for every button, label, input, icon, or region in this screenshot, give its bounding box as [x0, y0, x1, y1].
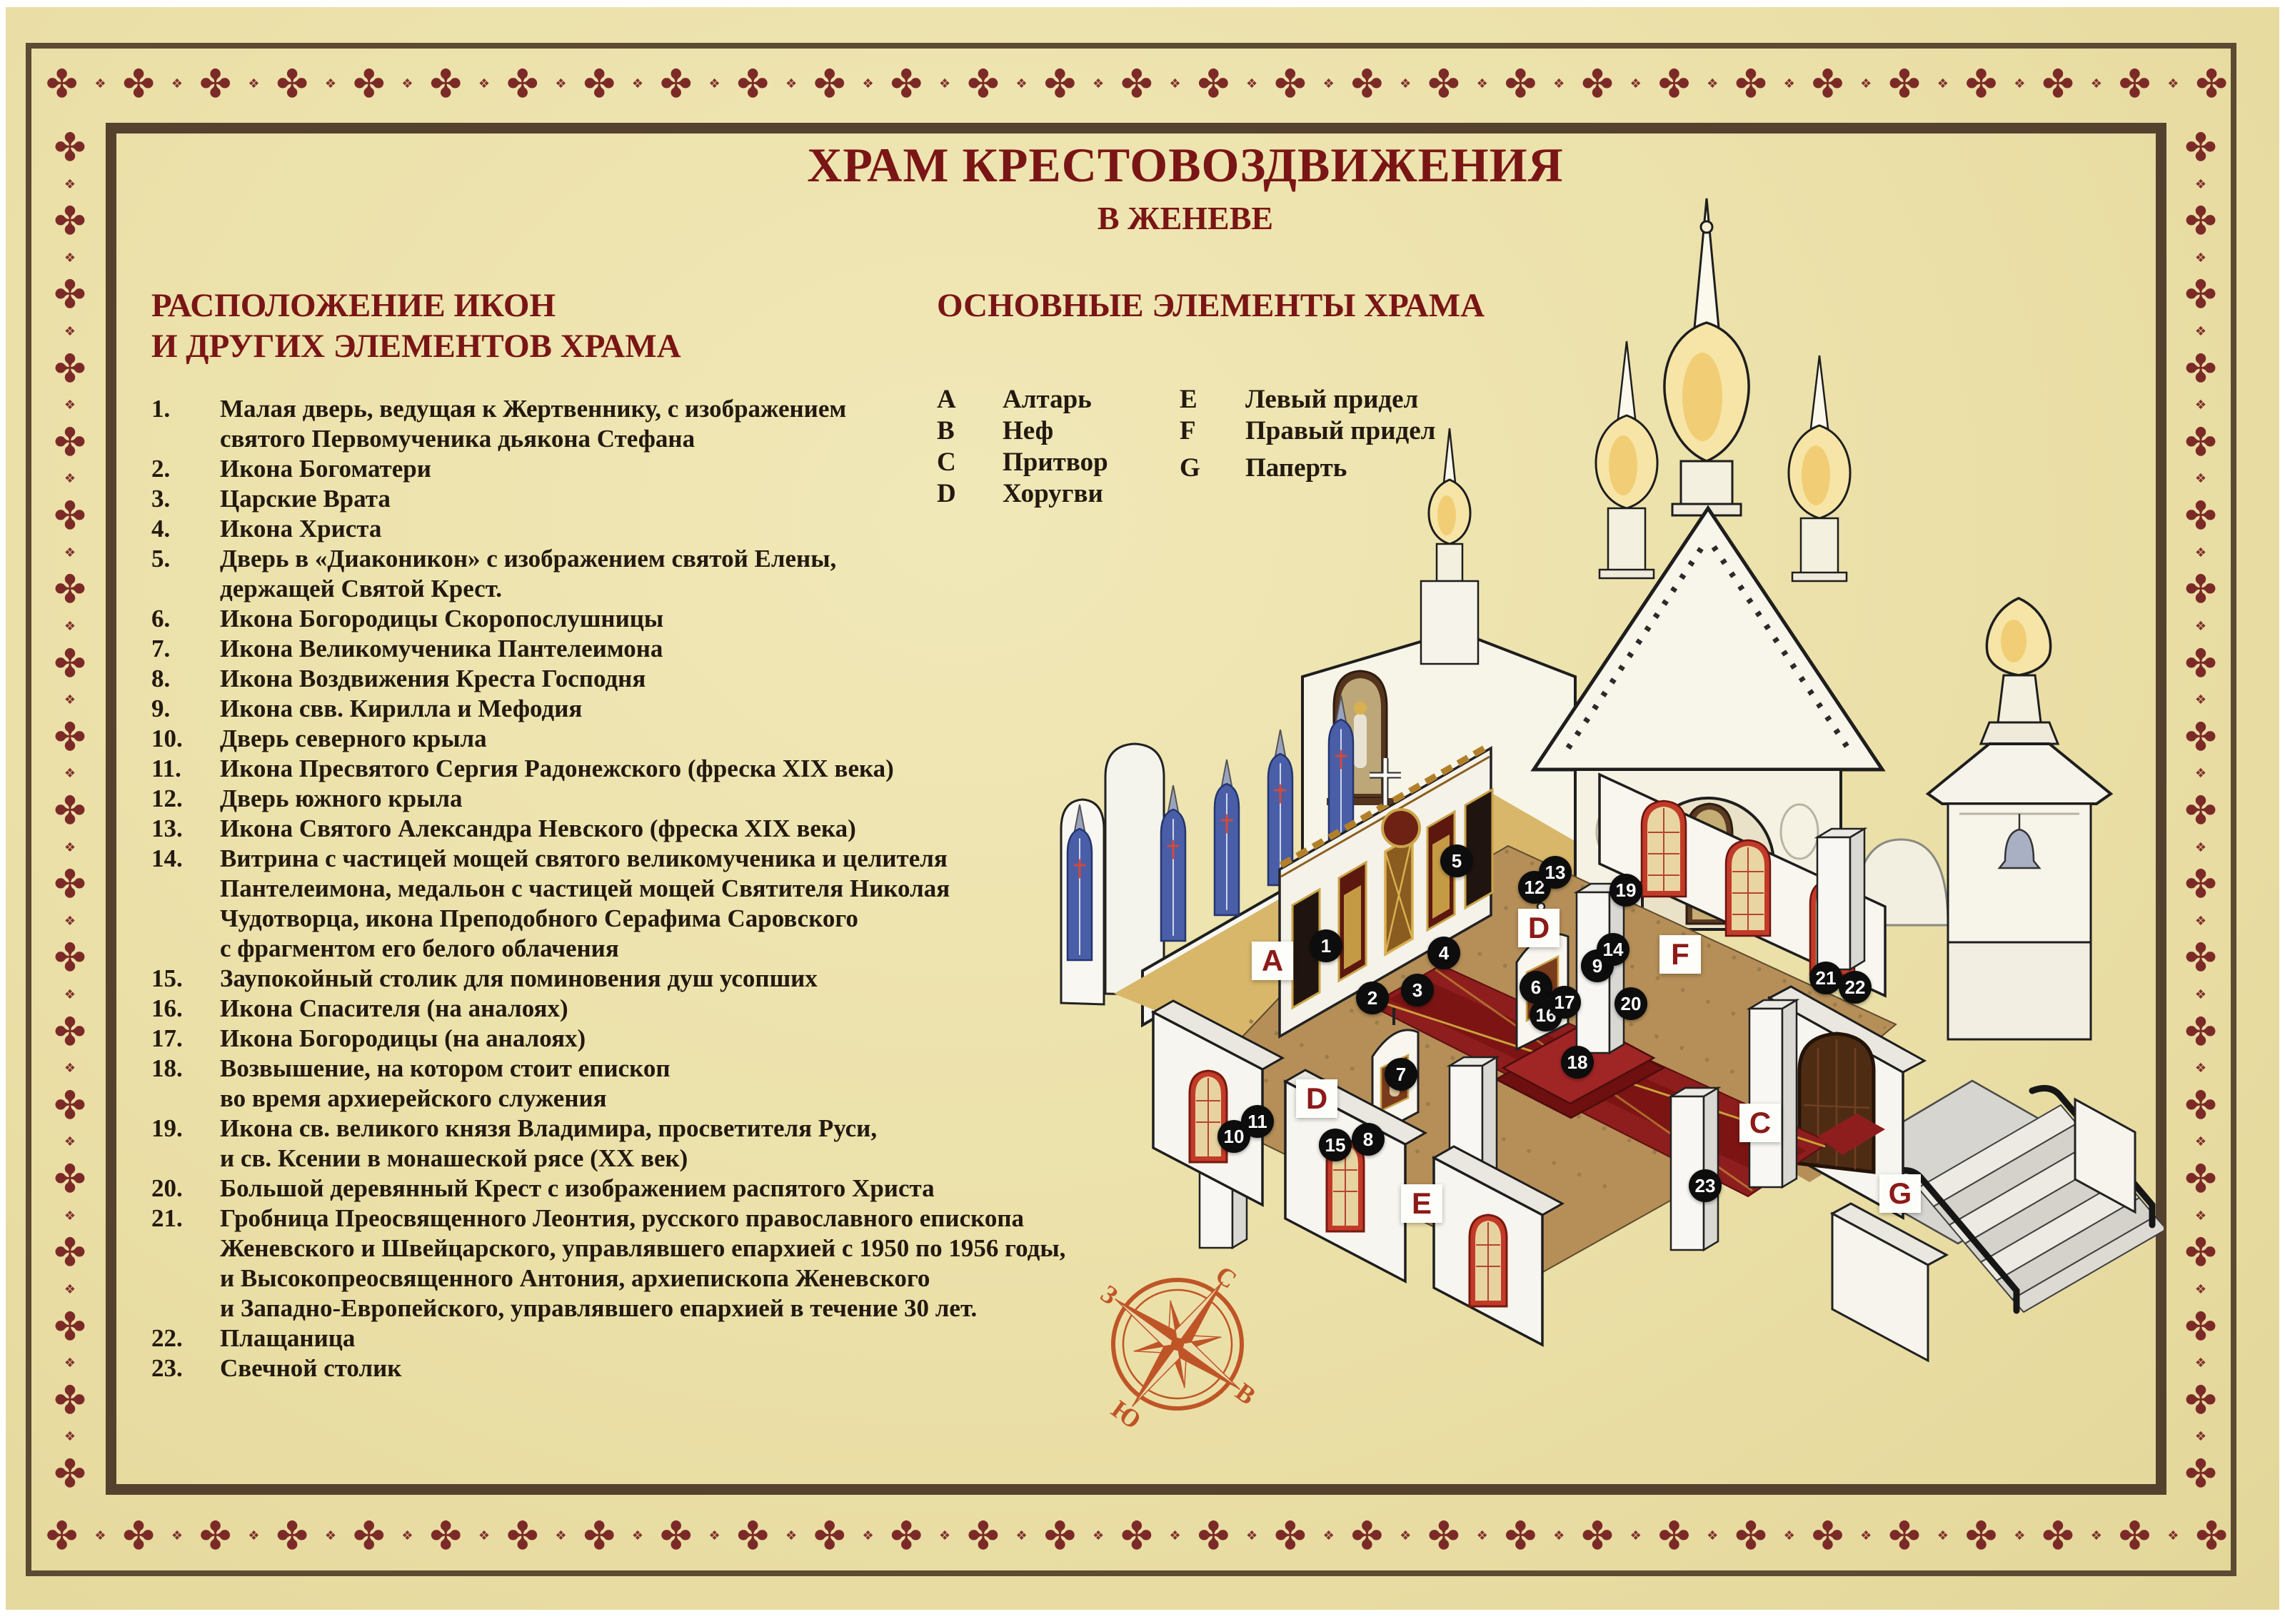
- border-dot-icon: ❖: [862, 1530, 873, 1543]
- border-rosette-icon: ✤: [1044, 65, 1076, 104]
- border-dot-icon: ❖: [1937, 1530, 1949, 1543]
- border-rosette-icon: ✤: [353, 1517, 385, 1555]
- border-rosette-icon: ✤: [54, 1086, 86, 1125]
- border-dot-icon: ❖: [1860, 1530, 1872, 1543]
- icon-list-item-text: Дверь в «Диаконикон» с изображением свят…: [220, 544, 836, 604]
- border-rosette-icon: ✤: [2184, 1086, 2216, 1125]
- icon-list-item-text: Витрина с частицей мощей святого великом…: [220, 844, 950, 964]
- border-dot-icon: ❖: [2091, 1530, 2102, 1543]
- border-rosette-icon: ✤: [276, 1517, 308, 1555]
- border-rosette-icon: ✤: [2184, 939, 2216, 977]
- icon-list-item-number: 21.: [151, 1204, 220, 1234]
- icon-list-item: 16.Икона Спасителя (на аналоях): [151, 994, 1087, 1024]
- border-rosette-icon: ✤: [2184, 497, 2216, 535]
- border-ornament-left: ✤❖✤❖✤❖✤❖✤❖✤❖✤❖✤❖✤❖✤❖✤❖✤❖✤❖✤❖✤❖✤❖✤❖✤❖✤: [39, 128, 101, 1493]
- border-rosette-icon: ✤: [2119, 1517, 2151, 1555]
- border-dot-icon: ❖: [325, 1530, 336, 1543]
- border-dot-icon: ❖: [1093, 1530, 1104, 1543]
- border-rosette-icon: ✤: [2184, 1381, 2216, 1420]
- icon-list-item-text: Икона свв. Кирилла и Мефодия: [220, 694, 582, 724]
- icon-list-item-text: Икона св. великого князя Владимира, прос…: [220, 1114, 877, 1174]
- border-rosette-icon: ✤: [1427, 1517, 1460, 1555]
- border-rosette-icon: ✤: [2184, 128, 2216, 167]
- border-dot-icon: ❖: [2195, 473, 2206, 485]
- icon-list-item-text: Дверь южного крыла: [220, 784, 463, 814]
- border-dot-icon: ❖: [2091, 78, 2102, 91]
- icon-list-item: 11.Икона Пресвятого Сергия Радонежского …: [151, 754, 1087, 784]
- border-rosette-icon: ✤: [2184, 276, 2216, 314]
- border-rosette-icon: ✤: [54, 423, 86, 462]
- border-rosette-icon: ✤: [813, 1517, 845, 1555]
- border-rosette-icon: ✤: [1197, 1517, 1230, 1555]
- icon-list-item: 9.Икона свв. Кирилла и Мефодия: [151, 694, 1087, 724]
- icon-list-item-number: 12.: [151, 784, 220, 814]
- icon-list-item-text: Икона Воздвижения Креста Господня: [220, 664, 646, 694]
- border-dot-icon: ❖: [1553, 78, 1565, 91]
- icon-list-item: 7.Икона Великомученика Пантелеимона: [151, 634, 1087, 664]
- border-rosette-icon: ✤: [813, 65, 845, 104]
- border-rosette-icon: ✤: [967, 65, 999, 104]
- border-dot-icon: ❖: [939, 1530, 950, 1543]
- border-rosette-icon: ✤: [123, 65, 155, 104]
- border-rosette-icon: ✤: [1427, 65, 1460, 104]
- icon-list-item: 10.Дверь северного крыла: [151, 724, 1087, 754]
- border-dot-icon: ❖: [1707, 78, 1718, 91]
- border-rosette-icon: ✤: [2184, 645, 2216, 683]
- border-dot-icon: ❖: [2195, 989, 2206, 1002]
- border-rosette-icon: ✤: [54, 1308, 86, 1346]
- border-dot-icon: ❖: [2195, 620, 2206, 633]
- border-dot-icon: ❖: [1477, 1530, 1488, 1543]
- border-dot-icon: ❖: [2195, 915, 2206, 928]
- border-rosette-icon: ✤: [276, 65, 308, 104]
- border-dot-icon: ❖: [2195, 252, 2206, 265]
- border-rosette-icon: ✤: [890, 1517, 923, 1555]
- border-rosette-icon: ✤: [54, 497, 86, 535]
- border-dot-icon: ❖: [64, 1431, 76, 1443]
- border-rosette-icon: ✤: [54, 1234, 86, 1272]
- border-rosette-icon: ✤: [2184, 423, 2216, 462]
- border-rosette-icon: ✤: [353, 65, 385, 104]
- icon-list-item: 17.Икона Богородицы (на аналоях): [151, 1024, 1087, 1054]
- icon-list-item-text: Икона Святого Александра Невского (фреск…: [220, 814, 856, 844]
- border-rosette-icon: ✤: [890, 65, 923, 104]
- border-dot-icon: ❖: [2195, 326, 2206, 338]
- icon-list-item: 21.Гробница Преосвященного Леонтия, русс…: [151, 1204, 1087, 1323]
- compass-rose: С В Ю З: [1088, 1255, 1267, 1433]
- border-dot-icon: ❖: [248, 1530, 259, 1543]
- border-rosette-icon: ✤: [2195, 1517, 2227, 1555]
- border-dot-icon: ❖: [64, 547, 76, 560]
- border-dot-icon: ❖: [2195, 1357, 2206, 1370]
- border-rosette-icon: ✤: [2184, 1455, 2216, 1493]
- border-dot-icon: ❖: [478, 1530, 490, 1543]
- icon-list-item: 12.Дверь южного крыла: [151, 784, 1087, 814]
- border-dot-icon: ❖: [64, 252, 76, 265]
- border-dot-icon: ❖: [1937, 78, 1949, 91]
- border-dot-icon: ❖: [555, 78, 566, 91]
- border-dot-icon: ❖: [1553, 1530, 1565, 1543]
- border-rosette-icon: ✤: [2184, 350, 2216, 388]
- border-dot-icon: ❖: [2195, 547, 2206, 560]
- border-dot-icon: ❖: [1323, 78, 1335, 91]
- icon-list-item: 23.Свечной столик: [151, 1353, 1087, 1383]
- icon-list-item-text: Икона Богородицы Скоропослушницы: [220, 604, 663, 634]
- border-rosette-icon: ✤: [2184, 1013, 2216, 1051]
- border-dot-icon: ❖: [2195, 1283, 2206, 1296]
- border-dot-icon: ❖: [64, 1357, 76, 1370]
- icon-list-item-text: Заупокойный столик для поминовения душ у…: [220, 964, 818, 994]
- legend-letter: B: [937, 415, 1003, 447]
- border-dot-icon: ❖: [2167, 78, 2179, 91]
- icon-list-item-number: 16.: [151, 994, 220, 1024]
- border-dot-icon: ❖: [478, 78, 490, 91]
- border-dot-icon: ❖: [248, 78, 259, 91]
- border-rosette-icon: ✤: [1658, 65, 1690, 104]
- border-rosette-icon: ✤: [737, 1517, 769, 1555]
- border-rosette-icon: ✤: [1120, 1517, 1152, 1555]
- border-dot-icon: ❖: [64, 473, 76, 485]
- iconostasis-door-south: [1465, 790, 1492, 908]
- border-rosette-icon: ✤: [199, 1517, 231, 1555]
- border-dot-icon: ❖: [171, 78, 183, 91]
- iconostasis-medallion: [1382, 810, 1420, 847]
- border-rosette-icon: ✤: [1658, 1517, 1690, 1555]
- border-dot-icon: ❖: [1784, 1530, 1795, 1543]
- border-dot-icon: ❖: [2167, 1530, 2179, 1543]
- icon-list-item-number: 5.: [151, 544, 220, 574]
- border-dot-icon: ❖: [171, 1530, 183, 1543]
- border-rosette-icon: ✤: [54, 865, 86, 904]
- border-dot-icon: ❖: [64, 989, 76, 1002]
- icon-list-item: 5.Дверь в «Диаконикон» с изображением св…: [151, 544, 1087, 604]
- border-dot-icon: ❖: [1016, 78, 1028, 91]
- border-rosette-icon: ✤: [54, 1455, 86, 1493]
- legend-letter: A: [937, 384, 1003, 415]
- border-rosette-icon: ✤: [54, 276, 86, 314]
- icon-list-item: 19.Икона св. великого князя Владимира, п…: [151, 1114, 1087, 1174]
- border-dot-icon: ❖: [785, 78, 797, 91]
- border-dot-icon: ❖: [862, 78, 873, 91]
- icon-list-item-number: 13.: [151, 814, 220, 844]
- icon-list-item-number: 10.: [151, 724, 220, 754]
- border-dot-icon: ❖: [785, 1530, 797, 1543]
- icon-list-item-text: Икона Великомученика Пантелеимона: [220, 634, 663, 664]
- icon-list-item-number: 14.: [151, 844, 220, 874]
- border-rosette-icon: ✤: [54, 1381, 86, 1420]
- border-rosette-icon: ✤: [1505, 65, 1537, 104]
- border-dot-icon: ❖: [64, 1136, 76, 1149]
- border-rosette-icon: ✤: [2184, 202, 2216, 241]
- icon-list-item-number: 11.: [151, 754, 220, 784]
- border-rosette-icon: ✤: [1351, 65, 1383, 104]
- border-rosette-icon: ✤: [2042, 65, 2074, 104]
- border-dot-icon: ❖: [2195, 399, 2206, 412]
- icon-list-item-text: Царские Врата: [220, 484, 391, 514]
- border-rosette-icon: ✤: [1274, 1517, 1306, 1555]
- border-dot-icon: ❖: [1246, 78, 1257, 91]
- icon-list-item-text: Икона Спасителя (на аналоях): [220, 994, 568, 1024]
- border-dot-icon: ❖: [2195, 694, 2206, 707]
- border-dot-icon: ❖: [632, 78, 643, 91]
- icon-list-item-text: Икона Богородицы (на аналоях): [220, 1024, 586, 1054]
- border-dot-icon: ❖: [64, 915, 76, 928]
- icon-list-item: 22.Плащаница: [151, 1323, 1087, 1353]
- border-rosette-icon: ✤: [54, 202, 86, 241]
- icon-list-item-text: Возвышение, на котором стоит епископ во …: [220, 1054, 671, 1114]
- border-rosette-icon: ✤: [1888, 65, 1920, 104]
- border-dot-icon: ❖: [1016, 1530, 1028, 1543]
- border-rosette-icon: ✤: [54, 939, 86, 977]
- border-dot-icon: ❖: [64, 1283, 76, 1296]
- border-rosette-icon: ✤: [660, 65, 692, 104]
- border-rosette-icon: ✤: [430, 1517, 462, 1555]
- border-dot-icon: ❖: [1170, 78, 1181, 91]
- icon-list-item-text: Большой деревянный Крест с изображением …: [220, 1174, 935, 1204]
- border-rosette-icon: ✤: [2184, 792, 2216, 830]
- border-ornament-top: ✤❖✤❖✤❖✤❖✤❖✤❖✤❖✤❖✤❖✤❖✤❖✤❖✤❖✤❖✤❖✤❖✤❖✤❖✤❖✤❖…: [46, 51, 2228, 117]
- border-rosette-icon: ✤: [54, 1160, 86, 1199]
- border-rosette-icon: ✤: [54, 1013, 86, 1051]
- border-rosette-icon: ✤: [2195, 65, 2227, 104]
- icon-list-item-number: 7.: [151, 634, 220, 664]
- border-dot-icon: ❖: [555, 1530, 566, 1543]
- border-rosette-icon: ✤: [46, 1517, 78, 1555]
- icon-list-item-text: Малая дверь, ведущая к Жертвеннику, с из…: [220, 394, 846, 454]
- icon-list-item: 6.Икона Богородицы Скоропослушницы: [151, 604, 1087, 634]
- border-dot-icon: ❖: [2195, 1136, 2206, 1149]
- border-rosette-icon: ✤: [506, 1517, 538, 1555]
- border-dot-icon: ❖: [2014, 78, 2025, 91]
- border-rosette-icon: ✤: [54, 570, 86, 609]
- icon-list-item-number: 22.: [151, 1323, 220, 1353]
- border-dot-icon: ❖: [64, 399, 76, 412]
- border-dot-icon: ❖: [708, 1530, 720, 1543]
- border-rosette-icon: ✤: [1734, 65, 1767, 104]
- church-bell-tower: [1928, 598, 2111, 1039]
- border-rosette-icon: ✤: [1581, 65, 1613, 104]
- border-rosette-icon: ✤: [1965, 1517, 1997, 1555]
- icon-list-item: 15.Заупокойный столик для поминовения ду…: [151, 964, 1087, 994]
- border-dot-icon: ❖: [1784, 78, 1795, 91]
- red-arched-window: [1726, 840, 1770, 936]
- border-rosette-icon: ✤: [1351, 1517, 1383, 1555]
- icon-list: 1.Малая дверь, ведущая к Жертвеннику, с …: [151, 394, 1087, 1383]
- icon-list-item-number: 3.: [151, 484, 220, 514]
- border-rosette-icon: ✤: [2184, 865, 2216, 904]
- icon-list-item-text: Дверь северного крыла: [220, 724, 487, 754]
- icon-list-item-text: Свечной столик: [220, 1353, 401, 1383]
- border-dot-icon: ❖: [94, 78, 106, 91]
- border-rosette-icon: ✤: [1044, 1517, 1076, 1555]
- border-dot-icon: ❖: [64, 694, 76, 707]
- border-dot-icon: ❖: [1860, 78, 1872, 91]
- border-rosette-icon: ✤: [54, 350, 86, 388]
- icon-list-item-number: 2.: [151, 454, 220, 484]
- icon-list-item: 14.Витрина с частицей мощей святого вели…: [151, 844, 1087, 964]
- border-rosette-icon: ✤: [123, 1517, 155, 1555]
- border-rosette-icon: ✤: [430, 65, 462, 104]
- border-rosette-icon: ✤: [583, 65, 616, 104]
- border-rosette-icon: ✤: [54, 645, 86, 683]
- compass-south-label: Ю: [1106, 1395, 1146, 1433]
- border-rosette-icon: ✤: [967, 1517, 999, 1555]
- border-rosette-icon: ✤: [54, 792, 86, 830]
- border-rosette-icon: ✤: [46, 65, 78, 104]
- border-ornament-right: ✤❖✤❖✤❖✤❖✤❖✤❖✤❖✤❖✤❖✤❖✤❖✤❖✤❖✤❖✤❖✤❖✤❖✤❖✤: [2171, 128, 2231, 1493]
- border-rosette-icon: ✤: [1734, 1517, 1767, 1555]
- compass-west-label: З: [1095, 1279, 1123, 1311]
- border-dot-icon: ❖: [401, 78, 413, 91]
- border-dot-icon: ❖: [2195, 1431, 2206, 1443]
- border-rosette-icon: ✤: [1274, 65, 1306, 104]
- border-dot-icon: ❖: [64, 178, 76, 191]
- border-dot-icon: ❖: [64, 842, 76, 854]
- icon-list-item-text: Икона Пресвятого Сергия Радонежского (фр…: [220, 754, 894, 784]
- border-dot-icon: ❖: [939, 78, 950, 91]
- border-rosette-icon: ✤: [1505, 1517, 1537, 1555]
- border-rosette-icon: ✤: [2184, 1308, 2216, 1346]
- iconostasis-door-north: [1292, 889, 1320, 1008]
- border-rosette-icon: ✤: [506, 65, 538, 104]
- border-dot-icon: ❖: [64, 1062, 76, 1075]
- icon-list-item: 18.Возвышение, на котором стоит епископ …: [151, 1054, 1087, 1114]
- border-dot-icon: ❖: [1630, 78, 1642, 91]
- border-rosette-icon: ✤: [2184, 1234, 2216, 1272]
- border-rosette-icon: ✤: [2184, 570, 2216, 609]
- icon-list-item-text: Гробница Преосвященного Леонтия, русског…: [220, 1204, 1065, 1323]
- border-dot-icon: ❖: [2195, 842, 2206, 854]
- border-dot-icon: ❖: [64, 326, 76, 338]
- border-rosette-icon: ✤: [2042, 1517, 2074, 1555]
- border-dot-icon: ❖: [2195, 1062, 2206, 1075]
- border-dot-icon: ❖: [401, 1530, 413, 1543]
- border-rosette-icon: ✤: [583, 1517, 616, 1555]
- icon-list-item-number: 23.: [151, 1353, 220, 1383]
- border-rosette-icon: ✤: [1812, 65, 1844, 104]
- border-dot-icon: ❖: [1093, 78, 1104, 91]
- icon-list-item: 13.Икона Святого Александра Невского (фр…: [151, 814, 1087, 844]
- icon-list-item-text: Икона Христа: [220, 514, 381, 544]
- icon-list-item-text: Плащаница: [220, 1323, 355, 1353]
- border-rosette-icon: ✤: [199, 65, 231, 104]
- border-rosette-icon: ✤: [737, 65, 769, 104]
- poster: ✤❖✤❖✤❖✤❖✤❖✤❖✤❖✤❖✤❖✤❖✤❖✤❖✤❖✤❖✤❖✤❖✤❖✤❖✤❖✤❖…: [0, 0, 2285, 1624]
- border-dot-icon: ❖: [2195, 1210, 2206, 1223]
- border-dot-icon: ❖: [2195, 767, 2206, 780]
- border-rosette-icon: ✤: [1120, 65, 1152, 104]
- border-dot-icon: ❖: [325, 78, 336, 91]
- border-rosette-icon: ✤: [2119, 65, 2151, 104]
- icon-list-item: 4.Икона Христа: [151, 514, 1087, 544]
- icon-list-item-number: 4.: [151, 514, 220, 544]
- border-rosette-icon: ✤: [2184, 1160, 2216, 1199]
- border-rosette-icon: ✤: [54, 128, 86, 167]
- church-domes: [1421, 198, 1850, 664]
- border-dot-icon: ❖: [2195, 178, 2206, 191]
- border-dot-icon: ❖: [1400, 1530, 1411, 1543]
- border-dot-icon: ❖: [64, 1210, 76, 1223]
- border-ornament-bottom: ✤❖✤❖✤❖✤❖✤❖✤❖✤❖✤❖✤❖✤❖✤❖✤❖✤❖✤❖✤❖✤❖✤❖✤❖✤❖✤❖…: [46, 1502, 2228, 1570]
- legend-letter: C: [937, 447, 1003, 478]
- icon-list-item-number: 9.: [151, 694, 220, 724]
- border-rosette-icon: ✤: [1965, 65, 1997, 104]
- border-dot-icon: ❖: [632, 1530, 643, 1543]
- icon-list-item-number: 20.: [151, 1174, 220, 1204]
- border-rosette-icon: ✤: [1197, 65, 1230, 104]
- border-rosette-icon: ✤: [660, 1517, 692, 1555]
- icon-list-item-number: 6.: [151, 604, 220, 634]
- border-dot-icon: ❖: [64, 620, 76, 633]
- icon-list-item: 8.Икона Воздвижения Креста Господня: [151, 664, 1087, 694]
- border-dot-icon: ❖: [1400, 78, 1411, 91]
- border-rosette-icon: ✤: [1812, 1517, 1844, 1555]
- legend-letter: D: [937, 478, 1003, 510]
- border-rosette-icon: ✤: [1888, 1517, 1920, 1555]
- border-dot-icon: ❖: [1246, 1530, 1257, 1543]
- border-dot-icon: ❖: [708, 78, 720, 91]
- icon-list-item-number: 19.: [151, 1114, 220, 1144]
- border-dot-icon: ❖: [1707, 1530, 1718, 1543]
- icon-list-item-text: Икона Богоматери: [220, 454, 431, 484]
- border-rosette-icon: ✤: [2184, 718, 2216, 757]
- icon-list-item-number: 18.: [151, 1054, 220, 1084]
- border-dot-icon: ❖: [94, 1530, 106, 1543]
- border-dot-icon: ❖: [2014, 1530, 2025, 1543]
- border-dot-icon: ❖: [1630, 1530, 1642, 1543]
- icon-list-item-number: 15.: [151, 964, 220, 994]
- compass-east-label: В: [1230, 1377, 1261, 1410]
- border-rosette-icon: ✤: [54, 718, 86, 757]
- icon-list-item: 20.Большой деревянный Крест с изображени…: [151, 1174, 1087, 1204]
- border-dot-icon: ❖: [1477, 78, 1488, 91]
- border-dot-icon: ❖: [1323, 1530, 1335, 1543]
- border-rosette-icon: ✤: [1581, 1517, 1613, 1555]
- red-arched-window: [1642, 801, 1686, 897]
- icon-list-item-number: 8.: [151, 664, 220, 694]
- icon-list-item-number: 1.: [151, 394, 220, 424]
- icon-list-item-number: 17.: [151, 1024, 220, 1054]
- border-dot-icon: ❖: [1170, 1530, 1181, 1543]
- border-dot-icon: ❖: [64, 767, 76, 780]
